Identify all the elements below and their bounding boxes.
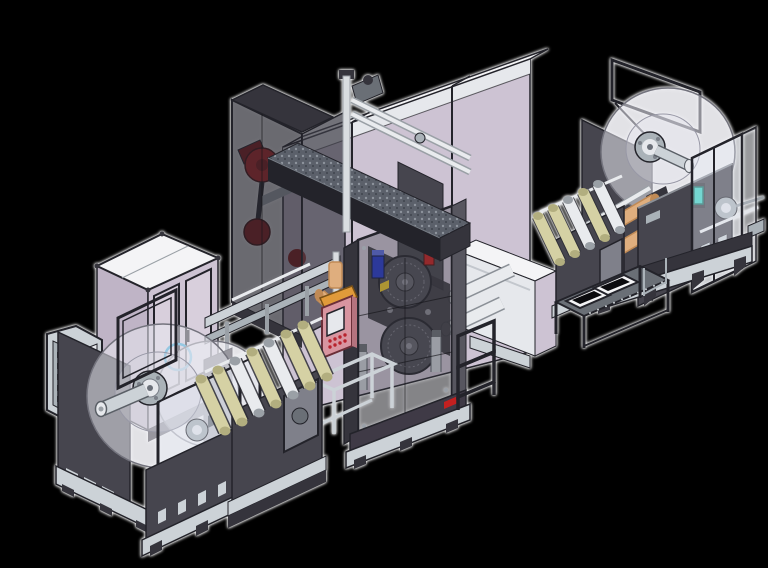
scene-svg — [0, 0, 768, 568]
pendant-sleeve — [329, 262, 342, 288]
rail-fitting — [415, 133, 425, 143]
chrome-post — [343, 76, 350, 232]
cad-render-stage — [0, 0, 768, 568]
